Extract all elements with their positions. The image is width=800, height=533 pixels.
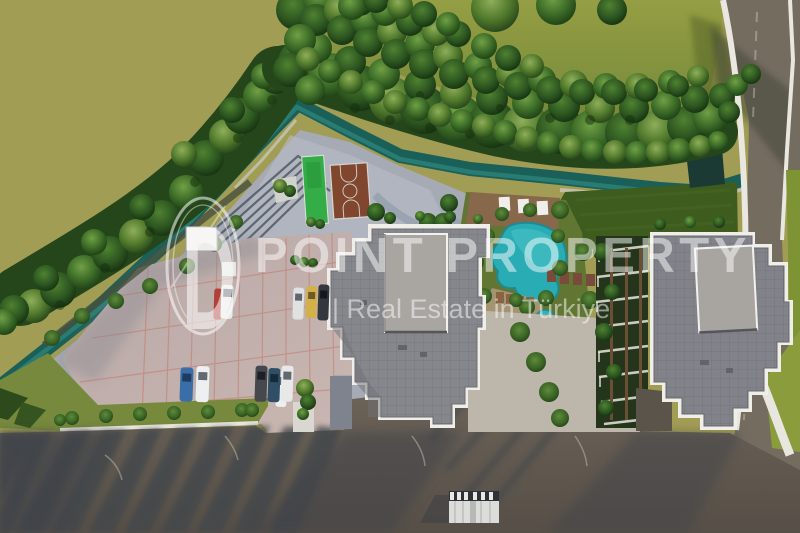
svg-text:POINT PROPERTY: POINT PROPERTY: [255, 229, 751, 283]
svg-text:| Real Estate in Türkiye: | Real Estate in Türkiye: [332, 294, 610, 324]
svg-text:D: D: [182, 194, 236, 361]
